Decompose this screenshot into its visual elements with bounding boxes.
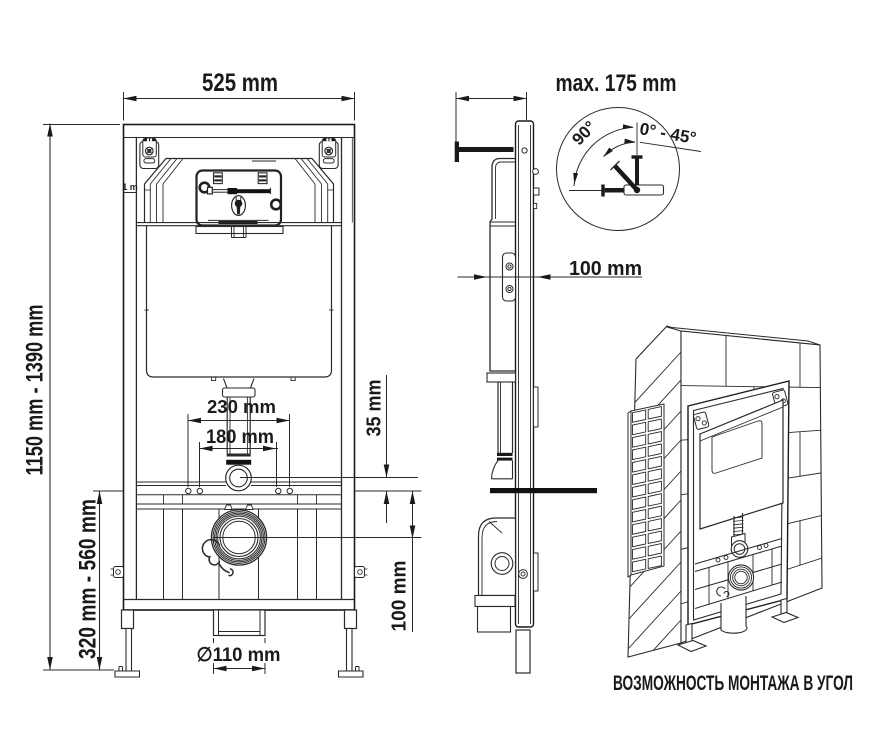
- svg-text:max. 175 mm: max. 175 mm: [556, 70, 677, 97]
- svg-text:ВОЗМОЖНОСТЬ МОНТАЖА В УГОЛ: ВОЗМОЖНОСТЬ МОНТАЖА В УГОЛ: [613, 671, 853, 695]
- svg-text:100 mm: 100 mm: [388, 561, 411, 632]
- svg-text:35 mm: 35 mm: [364, 380, 386, 437]
- svg-text:1150 mm - 1390 mm: 1150 mm - 1390 mm: [22, 305, 49, 476]
- svg-text:∅110 mm: ∅110 mm: [197, 644, 281, 666]
- svg-text:1 m: 1 m: [122, 182, 138, 192]
- svg-text:180 mm: 180 mm: [206, 427, 274, 448]
- svg-text:230 mm: 230 mm: [207, 396, 276, 417]
- svg-text:525 mm: 525 mm: [202, 69, 278, 97]
- svg-text:320 mm - 560 mm: 320 mm - 560 mm: [75, 499, 102, 659]
